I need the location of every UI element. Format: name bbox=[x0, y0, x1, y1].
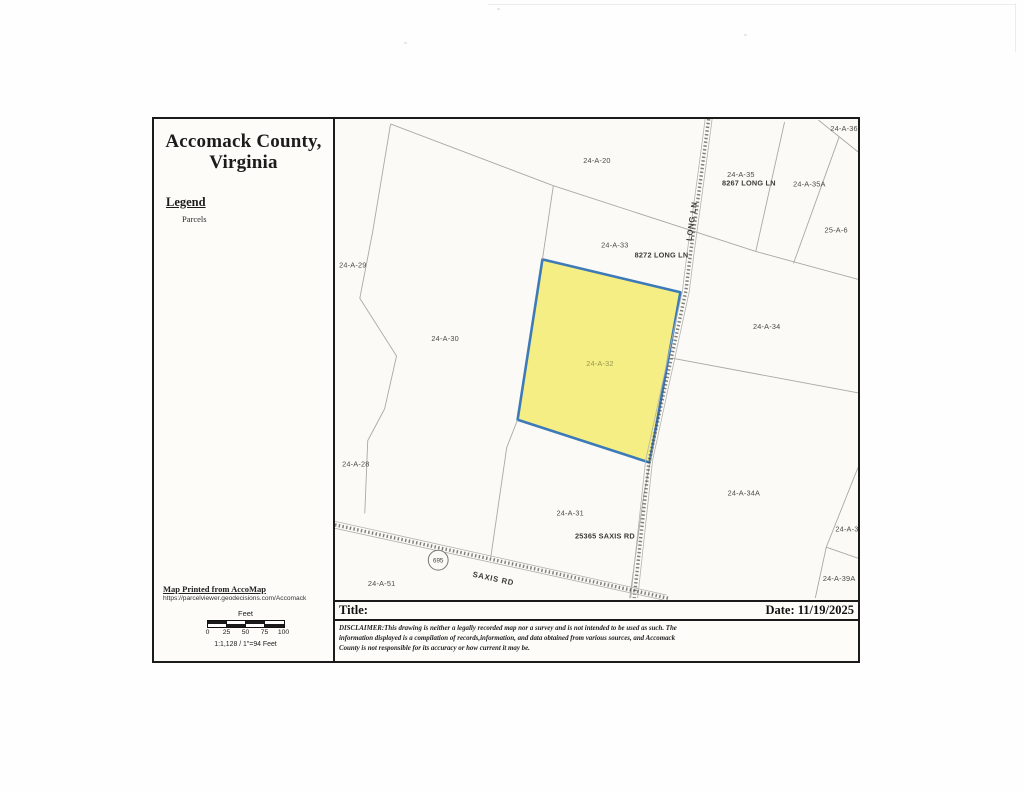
title-label: Title: bbox=[339, 603, 368, 618]
scale-bar bbox=[207, 620, 285, 628]
parcel-label-24-a-36: 24-A-36 bbox=[830, 124, 857, 133]
parcel-label-8272-long-ln: 8272 LONG LN bbox=[635, 250, 689, 259]
parcel-line bbox=[826, 547, 858, 558]
parcel-label-24-a-35: 24-A-35 bbox=[727, 170, 754, 179]
page-title: Accomack County, Virginia bbox=[154, 132, 333, 173]
date-label: Date: 11/19/2025 bbox=[765, 603, 854, 618]
parcel-label-24-a-20: 24-A-20 bbox=[583, 156, 610, 165]
scan-speck bbox=[404, 42, 407, 44]
parcel-label-24-a-29: 24-A-29 bbox=[339, 260, 366, 269]
parcel-label-24-a-31: 24-A-31 bbox=[556, 508, 583, 517]
disclaimer-box: DISCLAIMER:This drawing is neither a leg… bbox=[335, 621, 858, 661]
print-source-link: Map Printed from AccoMap bbox=[163, 584, 328, 594]
route-shield-number: 695 bbox=[433, 558, 444, 565]
scale-bar-group: Feet 0 25 50 75 100 1:1,128 / 1"=9 bbox=[204, 609, 288, 648]
map-sheet: Accomack County, Virginia Legend Parcels… bbox=[152, 117, 860, 663]
parcel-label-24-a-34: 24-A-34 bbox=[753, 322, 780, 331]
scan-edge-line bbox=[1015, 4, 1016, 52]
disclaimer-text: DISCLAIMER:This drawing is neither a leg… bbox=[339, 624, 719, 654]
parcel-label-24-a-39: 24-A-39 bbox=[835, 524, 858, 533]
scale-tick: 50 bbox=[242, 629, 250, 636]
scale-ratio-text: 1:1,128 / 1"=94 Feet bbox=[204, 641, 288, 648]
parcel-label-25365-saxis-rd: 25365 SAXIS RD bbox=[575, 531, 635, 540]
scale-tick: 25 bbox=[223, 629, 231, 636]
parcel-label-24-a-39a: 24-A-39A bbox=[823, 574, 856, 583]
legend-panel: Accomack County, Virginia Legend Parcels… bbox=[154, 119, 335, 661]
parcel-label-24-a-32: 24-A-32 bbox=[586, 359, 613, 368]
scale-tick: 100 bbox=[278, 629, 289, 636]
legend-heading: Legend bbox=[166, 195, 333, 210]
scan-edge-line bbox=[488, 4, 1016, 5]
scale-segment bbox=[245, 621, 264, 627]
parcel-map-svg: 695 24-A-2024-A-338272 LONG LNLONG LN24-… bbox=[335, 119, 858, 600]
parcel-label-24-a-35a: 24-A-35A bbox=[793, 180, 826, 189]
parcel-label-24-a-51: 24-A-51 bbox=[368, 579, 395, 588]
parcel-label-24-a-33: 24-A-33 bbox=[601, 240, 628, 249]
scale-tick: 0 bbox=[206, 629, 210, 636]
parcel-line bbox=[491, 420, 518, 557]
parcel-line bbox=[542, 186, 553, 260]
scan-speck bbox=[744, 34, 747, 36]
parcel-label-8267-long-ln: 8267 LONG LN bbox=[722, 179, 776, 188]
scale-unit-label: Feet bbox=[204, 609, 288, 618]
scanned-page: Accomack County, Virginia Legend Parcels… bbox=[0, 0, 1024, 791]
title-bar: Title: Date: 11/19/2025 bbox=[335, 600, 858, 621]
parcel-line bbox=[360, 124, 397, 513]
legend-item-parcels: Parcels bbox=[182, 214, 333, 224]
scan-speck bbox=[497, 8, 500, 10]
scale-tick: 75 bbox=[261, 629, 269, 636]
print-source-url: https://parcelviewer.geodecisions.com/Ac… bbox=[163, 595, 328, 602]
panel-footer: Map Printed from AccoMap https://parcelv… bbox=[163, 584, 328, 648]
parcel-label-25-a-6: 25-A-6 bbox=[825, 226, 848, 235]
road-label-saxis-rd: SAXIS RD bbox=[472, 570, 515, 588]
scale-segment bbox=[208, 621, 226, 627]
parcel-map: 695 24-A-2024-A-338272 LONG LNLONG LN24-… bbox=[335, 119, 858, 600]
parcel-line bbox=[793, 137, 839, 263]
parcel-label-24-a-34a: 24-A-34A bbox=[728, 488, 761, 497]
parcel-line bbox=[391, 124, 858, 279]
scale-ticks: 0 25 50 75 100 bbox=[208, 629, 284, 638]
parcel-label-24-a-28: 24-A-28 bbox=[342, 460, 369, 469]
parcel-line bbox=[671, 358, 858, 393]
scale-segment bbox=[226, 621, 245, 627]
scale-segment bbox=[264, 621, 283, 627]
parcel-label-24-a-30: 24-A-30 bbox=[431, 334, 458, 343]
